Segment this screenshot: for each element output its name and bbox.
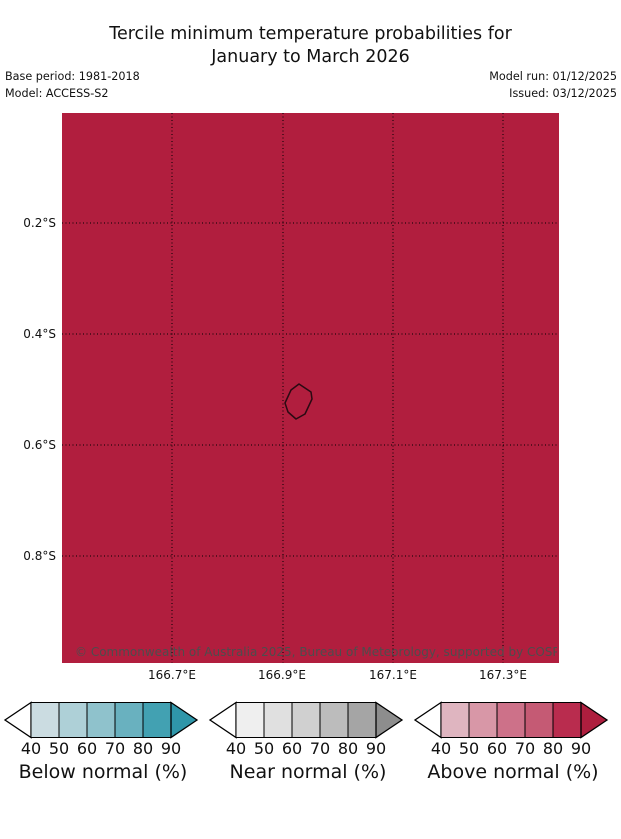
base-period-text: Base period: 1981-2018 (5, 69, 140, 85)
colorbar-left-arrow (5, 703, 31, 738)
y-axis-tick: 0.8°S (0, 548, 56, 564)
colorbar-label-above: Above normal (%) (413, 761, 613, 783)
x-axis-tick: 167.3°E (463, 668, 543, 682)
page-title-line2: January to March 2026 (0, 46, 621, 69)
colorbar-segment (143, 703, 171, 738)
model-text: Model: ACCESS-S2 (5, 86, 109, 102)
legend-below-normal: 40 50 60 70 80 90 Below normal (%) (3, 701, 203, 796)
colorbar-above-normal (413, 701, 613, 739)
colorbar-near-normal (208, 701, 408, 739)
x-axis-tick: 166.9°E (242, 668, 322, 682)
colorbar-tick: 40 (221, 739, 251, 758)
colorbar-tick: 90 (566, 739, 596, 758)
colorbar-tick: 50 (454, 739, 484, 758)
colorbar-segment (115, 703, 143, 738)
colorbar-tick: 90 (156, 739, 186, 758)
legend-near-normal: 40 50 60 70 80 90 Near normal (%) (208, 701, 408, 796)
colorbar-tick: 90 (361, 739, 391, 758)
colorbar-segment (348, 703, 376, 738)
colorbar-segment (236, 703, 264, 738)
colorbar-segment (264, 703, 292, 738)
issued-text: Issued: 03/12/2025 (509, 86, 617, 102)
map-fill (62, 113, 559, 663)
map-svg (62, 113, 559, 663)
colorbar-tick: 80 (538, 739, 568, 758)
colorbar-tick: 50 (249, 739, 279, 758)
legend-above-normal: 40 50 60 70 80 90 Above normal (%) (413, 701, 613, 796)
figure-canvas: { "header": { "title_line1": "Tercile mi… (0, 0, 621, 839)
map-area: © Commonwealth of Australia 2025, Bureau… (62, 113, 559, 663)
x-axis-tick: 166.7°E (132, 668, 212, 682)
colorbar-tick: 70 (510, 739, 540, 758)
colorbar-left-arrow (210, 703, 236, 738)
colorbar-left-arrow (415, 703, 441, 738)
colorbar-below-normal (3, 701, 203, 739)
colorbar-tick: 80 (128, 739, 158, 758)
x-axis-tick: 167.1°E (353, 668, 433, 682)
colorbar-tick: 60 (277, 739, 307, 758)
colorbar-segment (441, 703, 469, 738)
colorbar-label-below: Below normal (%) (3, 761, 203, 783)
colorbar-segment (31, 703, 59, 738)
colorbar-tick: 70 (100, 739, 130, 758)
colorbar-segment (497, 703, 525, 738)
colorbar-tick: 80 (333, 739, 363, 758)
y-axis-tick: 0.6°S (0, 437, 56, 453)
colorbar-segment (292, 703, 320, 738)
colorbar-label-near: Near normal (%) (208, 761, 408, 783)
colorbar-segment (525, 703, 553, 738)
colorbar-tick: 50 (44, 739, 74, 758)
colorbar-segment (320, 703, 348, 738)
colorbar-right-arrow (171, 703, 197, 738)
colorbar-right-arrow (581, 703, 607, 738)
copyright-text: © Commonwealth of Australia 2025, Bureau… (75, 645, 557, 659)
colorbar-tick: 60 (482, 739, 512, 758)
y-axis-tick: 0.2°S (0, 215, 56, 231)
y-axis-tick: 0.4°S (0, 326, 56, 342)
colorbar-tick: 60 (72, 739, 102, 758)
colorbar-segment (59, 703, 87, 738)
colorbar-segment (553, 703, 581, 738)
colorbar-segment (87, 703, 115, 738)
colorbar-tick: 40 (16, 739, 46, 758)
model-run-text: Model run: 01/12/2025 (489, 69, 617, 85)
colorbar-right-arrow (376, 703, 402, 738)
colorbar-tick: 40 (426, 739, 456, 758)
colorbar-segment (469, 703, 497, 738)
page-title: Tercile minimum temperature probabilitie… (0, 23, 621, 46)
colorbar-tick: 70 (305, 739, 335, 758)
